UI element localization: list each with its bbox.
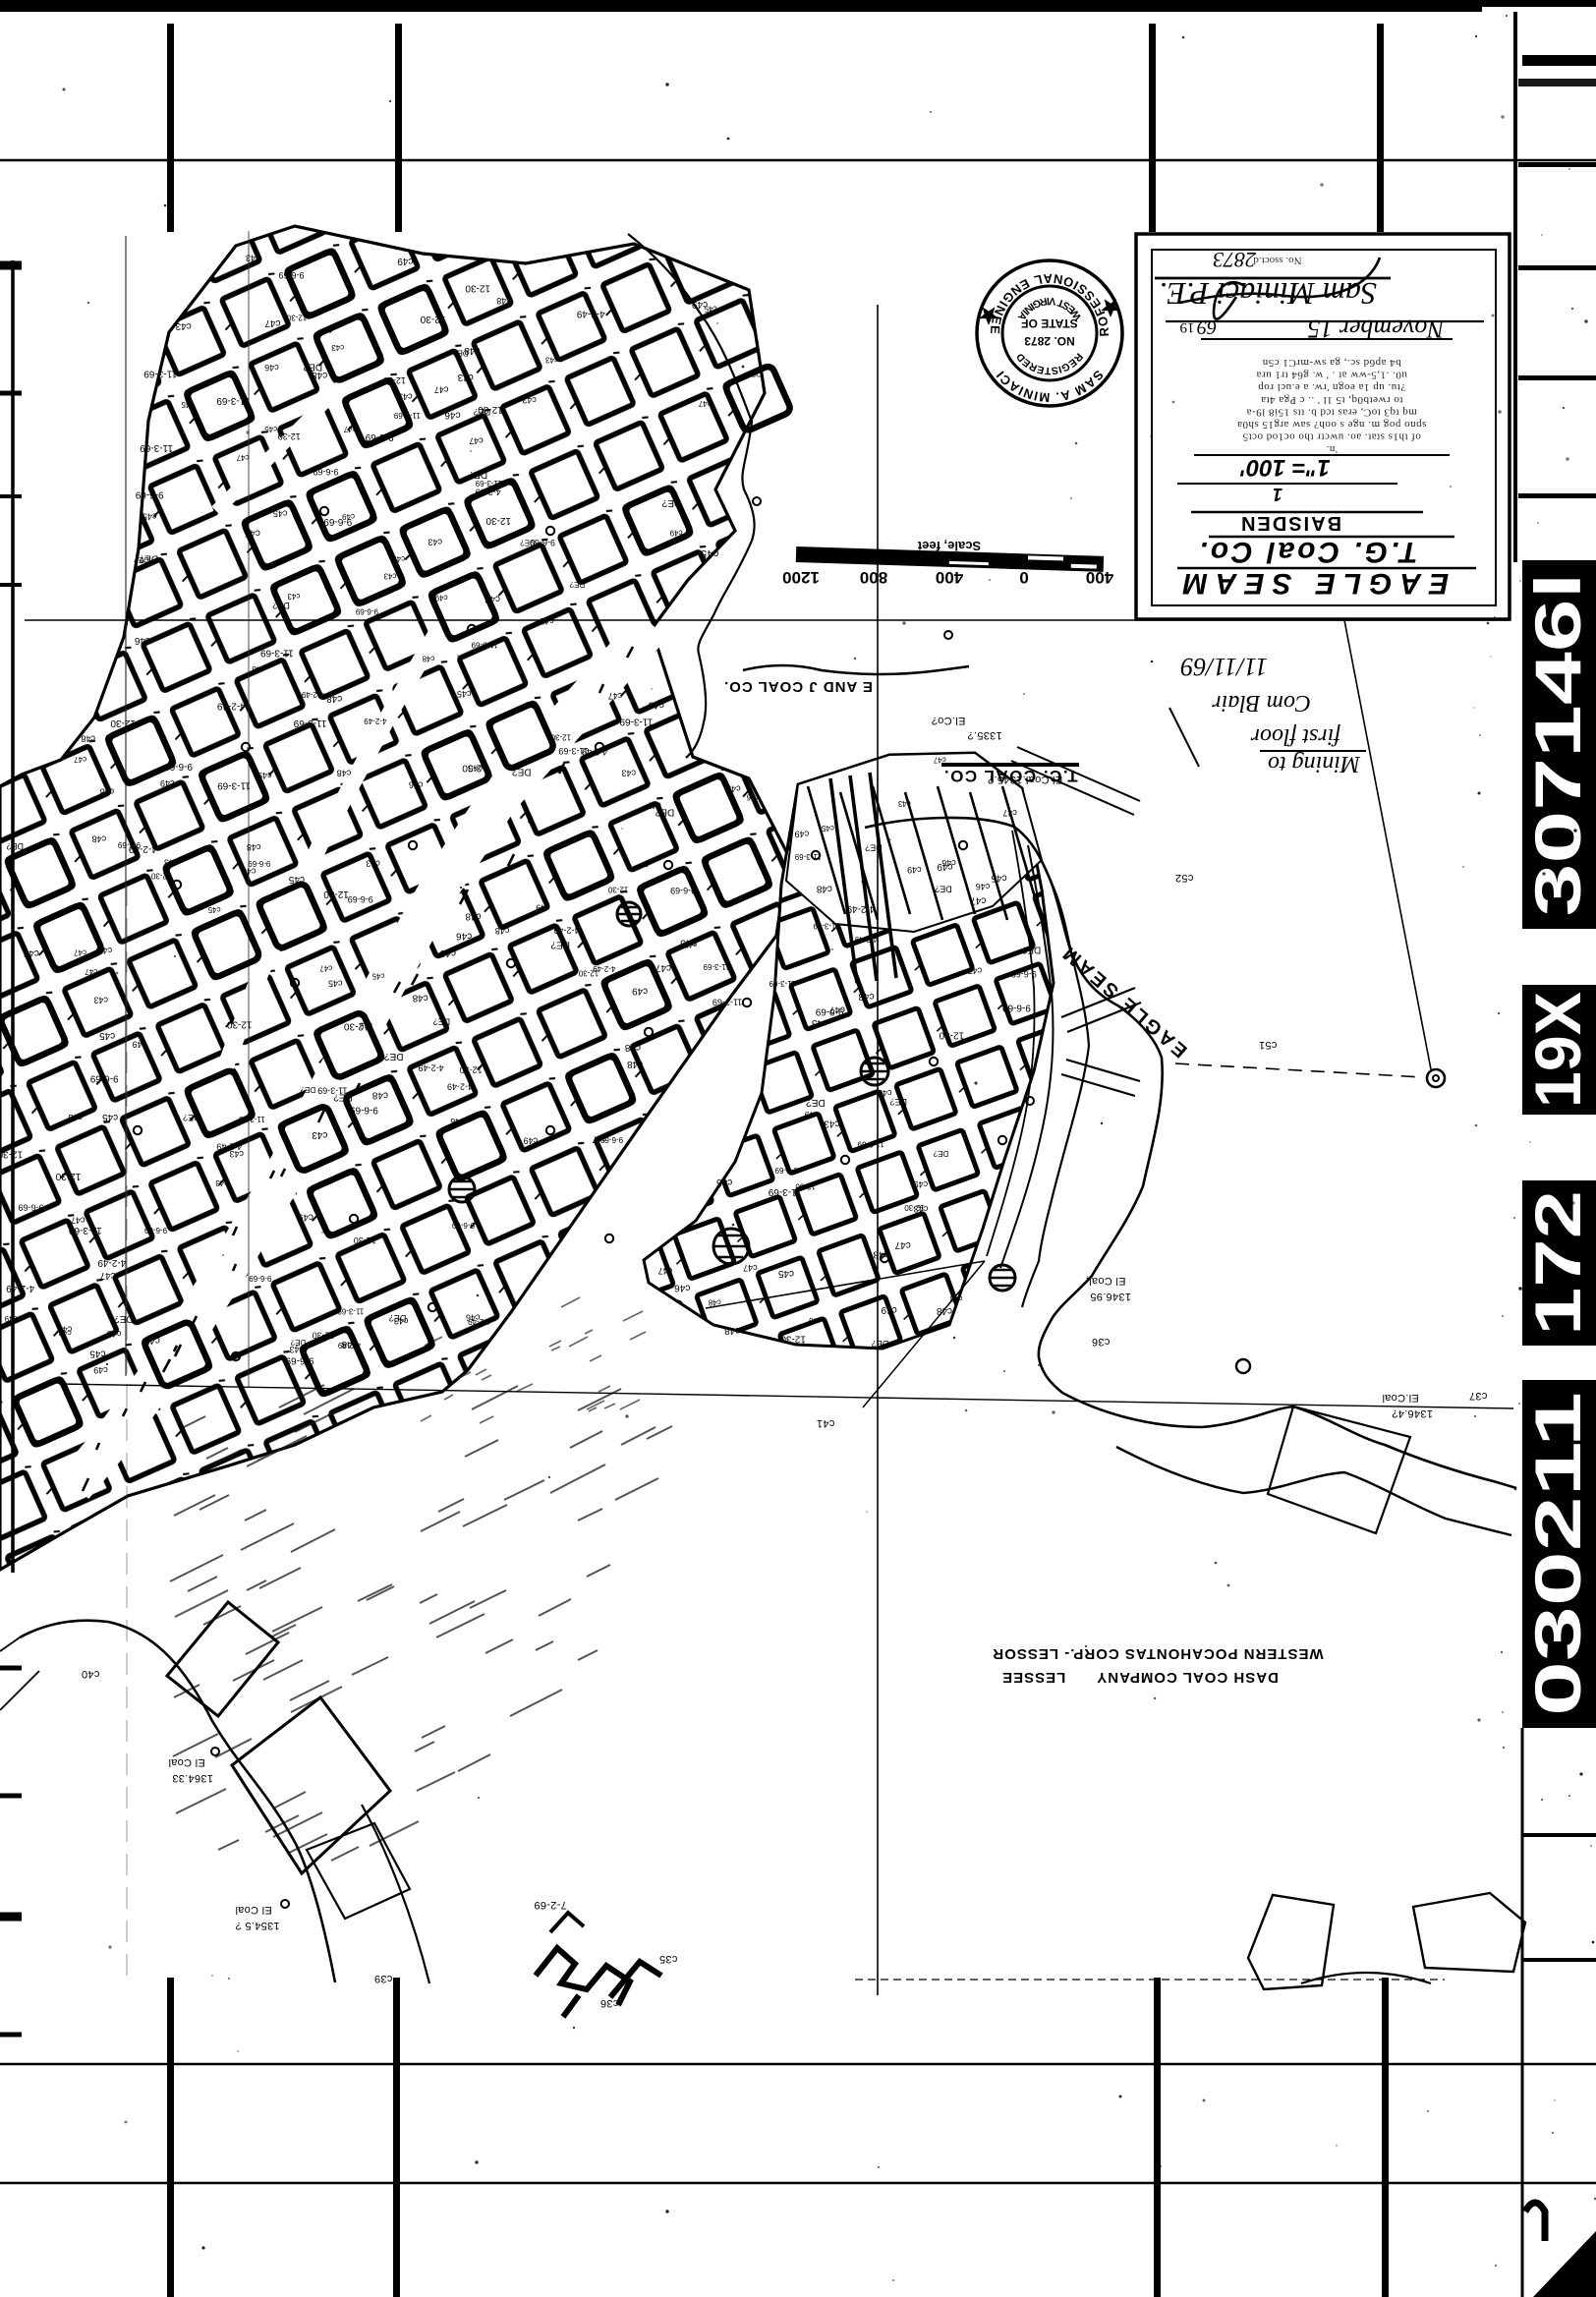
svg-text:DE?: DE? xyxy=(433,1017,451,1027)
svg-text:800: 800 xyxy=(860,568,887,587)
svg-text:c45: c45 xyxy=(102,1112,119,1122)
svg-text:c47: c47 xyxy=(85,967,97,976)
svg-text:c45: c45 xyxy=(468,764,483,774)
svg-text:c46: c46 xyxy=(23,948,39,958)
svg-text:9-6-69: 9-6-69 xyxy=(89,1072,118,1083)
svg-text:DE?: DE? xyxy=(569,580,585,589)
svg-text:c47: c47 xyxy=(434,385,449,395)
svg-text:c48: c48 xyxy=(624,1042,641,1053)
svg-text:El Coal: El Coal xyxy=(235,1904,272,1916)
svg-text:4-2-49: 4-2-49 xyxy=(364,717,387,725)
svg-text:c43: c43 xyxy=(175,320,192,331)
svg-text:4-2-49: 4-2-49 xyxy=(216,1141,242,1151)
svg-text:c46: c46 xyxy=(648,700,664,711)
svg-text:4-2-49: 4-2-49 xyxy=(301,690,324,699)
svg-text:c48: c48 xyxy=(724,1325,741,1336)
svg-text:11-3-69: 11-3-69 xyxy=(619,717,653,727)
svg-text:El Coal: El Coal xyxy=(168,1756,205,1768)
svg-text:c43: c43 xyxy=(545,355,558,364)
svg-text:to rwetb0q, t5 1l ' .. c: to rwetb0q, t5 1l ' .. c Pga 4ta xyxy=(1261,394,1403,406)
svg-text:11-3-69: 11-3-69 xyxy=(471,641,498,650)
svg-text:c48: c48 xyxy=(464,345,481,356)
svg-text:El.Co?: El.Co? xyxy=(932,715,966,726)
svg-text:c49: c49 xyxy=(133,1039,147,1049)
svg-text:c49: c49 xyxy=(524,1136,539,1146)
svg-text:11-3-69: 11-3-69 xyxy=(260,648,294,659)
svg-text:12-30: 12-30 xyxy=(278,431,301,441)
svg-text:c52: c52 xyxy=(1175,872,1194,884)
svg-text:c46: c46 xyxy=(466,1312,481,1322)
svg-text:mq tq3 toC, eras tcd b. tts 1: mq tq3 toC, eras tcd b. tts 15i8 l9-a xyxy=(1246,406,1417,418)
svg-text:c48: c48 xyxy=(495,926,510,936)
svg-text:c47: c47 xyxy=(828,1004,845,1014)
svg-text:El.Coal: El.Coal xyxy=(1382,1392,1419,1404)
svg-text:November 15: November 15 xyxy=(1307,315,1445,343)
svg-text:c47: c47 xyxy=(1002,808,1017,818)
svg-text:4-2-49: 4-2-49 xyxy=(447,1082,473,1092)
svg-text:c48: c48 xyxy=(326,693,343,704)
svg-text:c45: c45 xyxy=(142,512,157,522)
svg-text:c46: c46 xyxy=(674,1282,691,1292)
svg-text:11-3-69: 11-3-69 xyxy=(703,962,730,971)
svg-text:c36: c36 xyxy=(600,1997,619,2009)
svg-text:El.Coal.1345.?: El.Coal.1345.? xyxy=(988,774,1062,785)
svg-text:c47: c47 xyxy=(894,1239,911,1250)
svg-text:c46: c46 xyxy=(444,410,461,421)
svg-text:c47: c47 xyxy=(608,691,623,701)
svg-text:c47: c47 xyxy=(968,965,983,975)
svg-text:400: 400 xyxy=(1086,568,1113,587)
svg-text:c39: c39 xyxy=(374,1973,393,1984)
svg-text:Mining to: Mining to xyxy=(1268,751,1361,776)
svg-text:c45: c45 xyxy=(107,1329,122,1339)
svg-text:c48: c48 xyxy=(708,1297,720,1306)
svg-text:c47: c47 xyxy=(319,964,332,973)
svg-text:c48: c48 xyxy=(252,664,264,673)
svg-text:c43: c43 xyxy=(858,991,875,1002)
svg-text:c45: c45 xyxy=(811,1017,827,1028)
svg-text:c35: c35 xyxy=(659,1953,678,1965)
svg-text:c47: c47 xyxy=(74,755,86,764)
svg-text:c49: c49 xyxy=(397,256,414,266)
svg-text:c48: c48 xyxy=(949,1294,962,1303)
svg-text:9-6-69: 9-6-69 xyxy=(1002,1002,1031,1012)
svg-text:4-2-49: 4-2-49 xyxy=(419,1063,444,1073)
svg-text:c49: c49 xyxy=(297,1212,313,1223)
svg-text:12-30: 12-30 xyxy=(939,1029,964,1040)
svg-text:c48: c48 xyxy=(92,834,107,844)
svg-text:307146l: 307146l xyxy=(1521,573,1594,917)
svg-text:DE?: DE? xyxy=(550,939,570,949)
svg-text:11-3-69: 11-3-69 xyxy=(813,921,840,930)
svg-text:STATE OF: STATE OF xyxy=(1021,316,1078,330)
svg-text:11-3-69: 11-3-69 xyxy=(69,1225,102,1235)
svg-text:No. ssoct.d: No. ssoct.d xyxy=(1253,255,1302,266)
svg-text:9-6-69: 9-6-69 xyxy=(248,859,271,868)
svg-text:c43: c43 xyxy=(366,859,380,869)
svg-text:DE?: DE? xyxy=(114,1313,134,1324)
svg-text:1335.?: 1335.? xyxy=(967,729,1001,741)
svg-text:c49: c49 xyxy=(93,1365,108,1375)
svg-text:c40: c40 xyxy=(82,1668,100,1680)
svg-text:c43: c43 xyxy=(58,1324,73,1334)
svg-text:9-6-69: 9-6-69 xyxy=(1011,969,1037,979)
svg-text:11-3-69: 11-3-69 xyxy=(217,780,251,791)
svg-text:11-3-69: 11-3-69 xyxy=(794,852,822,861)
svg-text:c46: c46 xyxy=(134,635,150,646)
svg-text:c45: c45 xyxy=(328,979,343,989)
svg-text:11/11/69: 11/11/69 xyxy=(1180,653,1268,681)
svg-text:EAGLE SEAM: EAGLE SEAM xyxy=(1175,567,1449,600)
svg-text:c48: c48 xyxy=(465,911,482,922)
svg-text:19X: 19X xyxy=(1521,992,1594,1108)
svg-text:c37: c37 xyxy=(1469,1390,1488,1402)
svg-text:11-3-69: 11-3-69 xyxy=(293,718,326,728)
svg-text:c46: c46 xyxy=(439,948,456,958)
svg-text:4-2-49: 4-2-49 xyxy=(128,843,156,854)
svg-text:4-2-49: 4-2-49 xyxy=(97,1257,126,1268)
svg-text:1200: 1200 xyxy=(782,568,820,587)
svg-text:c45: c45 xyxy=(457,689,472,699)
svg-text:c46: c46 xyxy=(456,930,473,941)
svg-text:c47: c47 xyxy=(236,453,249,462)
svg-text:c48: c48 xyxy=(936,1305,952,1316)
svg-text:9-6-69: 9-6-69 xyxy=(774,1166,798,1175)
svg-text:c46: c46 xyxy=(976,882,991,891)
svg-text:12-30: 12-30 xyxy=(795,1181,816,1190)
svg-text:c47: c47 xyxy=(592,1134,606,1144)
svg-text:DE?: DE? xyxy=(889,1097,907,1107)
svg-text:c48: c48 xyxy=(247,842,261,852)
svg-text:4-2-49: 4-2-49 xyxy=(846,903,875,914)
svg-text:12-30: 12-30 xyxy=(323,889,349,899)
svg-text:1346.4?: 1346.4? xyxy=(1392,1407,1433,1419)
svg-text:DE?: DE? xyxy=(935,885,952,894)
svg-text:DE?: DE? xyxy=(933,1149,948,1158)
svg-text:030211: 030211 xyxy=(1521,1392,1594,1716)
svg-text:Com Blair: Com Blair xyxy=(1212,690,1311,716)
svg-text:12-30: 12-30 xyxy=(478,404,503,415)
svg-text:c45: c45 xyxy=(371,972,384,981)
svg-text:DE?: DE? xyxy=(806,1097,826,1108)
svg-text:c47: c47 xyxy=(99,1270,116,1281)
svg-text:c49: c49 xyxy=(795,830,810,839)
svg-text:9-6-69: 9-6-69 xyxy=(348,894,373,904)
svg-text:11-3-69: 11-3-69 xyxy=(857,1140,884,1149)
svg-text:c43: c43 xyxy=(215,1178,228,1187)
svg-text:0: 0 xyxy=(1019,568,1028,587)
svg-text:12-30: 12-30 xyxy=(354,1235,376,1245)
svg-text:172: 172 xyxy=(1521,1190,1594,1336)
svg-text:b4 ap6d sc., ga sw-mrC1 c5n: b4 ap6d sc., ga sw-mrC1 c5n xyxy=(1262,357,1401,369)
svg-text:c48: c48 xyxy=(337,768,352,777)
svg-text:c48: c48 xyxy=(422,655,434,663)
svg-text:?tu. up 1a eogn 'rw. a e.ucl: ?tu. up 1a eogn 'rw. a e.ucl rop xyxy=(1258,381,1405,393)
svg-text:E AND J COAL CO.: E AND J COAL CO. xyxy=(723,678,873,695)
svg-text:12-30: 12-30 xyxy=(55,1171,81,1181)
svg-text:c49: c49 xyxy=(692,299,709,310)
svg-text:9-6-69: 9-6-69 xyxy=(135,489,163,500)
svg-text:DE?: DE? xyxy=(389,1313,407,1323)
svg-text:9-6-69: 9-6-69 xyxy=(249,1274,272,1283)
svg-text:c45: c45 xyxy=(89,1349,106,1359)
svg-text:4-2-49: 4-2-49 xyxy=(854,935,878,944)
svg-text:c43: c43 xyxy=(312,1129,328,1140)
svg-text:NO. 2873: NO. 2873 xyxy=(1024,334,1075,348)
svg-text:c49: c49 xyxy=(684,941,697,949)
svg-text:7-2-69: 7-2-69 xyxy=(534,1899,567,1911)
svg-text:c45: c45 xyxy=(878,1088,892,1098)
svg-text:c43: c43 xyxy=(383,572,396,581)
svg-text:c46: c46 xyxy=(809,1316,822,1325)
svg-text:DE?: DE? xyxy=(872,1339,889,1349)
svg-text:BAISDEN: BAISDEN xyxy=(1239,512,1341,534)
svg-text:c48: c48 xyxy=(100,787,115,797)
svg-text:c43: c43 xyxy=(287,592,300,601)
svg-text:c46: c46 xyxy=(746,792,759,801)
svg-text:c47: c47 xyxy=(71,1215,85,1225)
svg-text:9-6-69: 9-6-69 xyxy=(451,1221,475,1230)
svg-text:c51: c51 xyxy=(1259,1039,1278,1051)
svg-text:DE?: DE? xyxy=(300,1085,315,1094)
svg-text:69: 69 xyxy=(1197,316,1217,338)
svg-text:c48: c48 xyxy=(627,1059,644,1069)
svg-text:12-30: 12-30 xyxy=(485,515,511,526)
svg-text:12-30: 12-30 xyxy=(460,1064,483,1074)
svg-text:c49: c49 xyxy=(937,861,953,872)
svg-text:4-2-49: 4-2-49 xyxy=(6,1283,34,1293)
svg-text:c43: c43 xyxy=(621,769,636,778)
svg-text:DE?: DE? xyxy=(1021,944,1041,954)
svg-text:4-2-49: 4-2-49 xyxy=(553,925,579,935)
svg-text:c49: c49 xyxy=(4,1314,17,1323)
svg-text:WESTERN POCAHONTAS CORP.- LESS: WESTERN POCAHONTAS CORP.- LESSOR xyxy=(992,1645,1323,1662)
svg-text:c48: c48 xyxy=(412,993,428,1004)
svg-text:c43: c43 xyxy=(246,253,260,262)
svg-text:1346.95: 1346.95 xyxy=(1090,1291,1131,1302)
svg-text:T.G. Coal Co.: T.G. Coal Co. xyxy=(1196,536,1417,568)
svg-text:11-3-69: 11-3-69 xyxy=(769,979,796,988)
svg-text:c45: c45 xyxy=(264,425,277,433)
svg-text:c46: c46 xyxy=(264,363,279,373)
svg-text:c43: c43 xyxy=(522,395,537,405)
svg-text:11-3-69: 11-3-69 xyxy=(337,1306,365,1315)
svg-text:c45: c45 xyxy=(777,1268,794,1279)
svg-text:c45: c45 xyxy=(99,1030,116,1041)
svg-text:12-30: 12-30 xyxy=(0,1148,23,1159)
svg-text:c49: c49 xyxy=(914,1179,929,1189)
svg-text:'n.: 'n. xyxy=(1326,443,1338,455)
svg-text:DE?: DE? xyxy=(865,843,883,853)
svg-text:12-30: 12-30 xyxy=(607,886,628,894)
svg-text:DE?: DE? xyxy=(303,361,322,372)
svg-text:c45: c45 xyxy=(821,824,833,833)
svg-text:first floor: first floor xyxy=(1250,723,1340,749)
svg-text:12-30: 12-30 xyxy=(465,282,490,293)
svg-text:c45: c45 xyxy=(716,1177,733,1187)
svg-text:c47: c47 xyxy=(647,801,661,811)
svg-text:11-3-69: 11-3-69 xyxy=(712,998,742,1007)
svg-text:c43: c43 xyxy=(897,799,910,808)
svg-text:c49: c49 xyxy=(536,903,550,913)
svg-text:DE?: DE? xyxy=(139,553,158,564)
svg-text:9-6-69: 9-6-69 xyxy=(355,607,378,616)
svg-text:12-30: 12-30 xyxy=(780,1334,806,1345)
svg-text:400: 400 xyxy=(936,568,963,587)
svg-text:4-2-49: 4-2-49 xyxy=(576,308,604,318)
svg-text:c46: c46 xyxy=(409,779,424,789)
svg-text:c48: c48 xyxy=(540,616,554,626)
svg-text:c48: c48 xyxy=(496,296,511,306)
svg-text:c49: c49 xyxy=(160,778,175,788)
svg-text:c36: c36 xyxy=(1092,1336,1111,1348)
svg-text:c49: c49 xyxy=(632,986,649,997)
svg-text:4-2-49: 4-2-49 xyxy=(216,700,245,711)
svg-text:12-30: 12-30 xyxy=(904,1203,925,1212)
svg-text:c47: c47 xyxy=(264,317,281,328)
svg-text:c48: c48 xyxy=(69,1113,84,1122)
svg-text:c47: c47 xyxy=(970,894,987,905)
svg-text:Scale, feet: Scale, feet xyxy=(917,539,981,553)
svg-text:c48: c48 xyxy=(816,884,832,894)
svg-text:12-30: 12-30 xyxy=(227,1018,253,1029)
svg-text:c48: c48 xyxy=(81,733,95,743)
svg-text:9-6-69: 9-6-69 xyxy=(143,1226,167,1235)
svg-text:DASH COAL COMPANY LESSEE: DASH COAL COMPANY LESSEE xyxy=(1001,1669,1279,1686)
svg-text:9-6-69: 9-6-69 xyxy=(313,467,339,477)
svg-text:DE?: DE? xyxy=(384,1051,404,1062)
svg-text:c43: c43 xyxy=(824,1118,840,1128)
svg-text:11-3-69: 11-3-69 xyxy=(143,369,177,379)
svg-text:9-6-69: 9-6-69 xyxy=(19,1203,44,1213)
svg-text:1354.5 ?: 1354.5 ? xyxy=(235,1920,279,1931)
svg-text:of th1s stat. ao. uwctr tho oc: of th1s stat. ao. uwctr tho oc1od oct5 xyxy=(1242,431,1421,443)
svg-text:c45: c45 xyxy=(242,867,256,877)
svg-text:1"= 100': 1"= 100' xyxy=(1239,454,1330,481)
svg-text:c48: c48 xyxy=(371,1090,388,1101)
svg-text:c49: c49 xyxy=(805,1110,820,1120)
svg-text:c47: c47 xyxy=(469,436,484,446)
svg-text:1364.33: 1364.33 xyxy=(172,1772,213,1784)
svg-text:9-6-69: 9-6-69 xyxy=(323,516,352,527)
svg-text:1: 1 xyxy=(1273,485,1282,504)
svg-text:c49: c49 xyxy=(881,1304,897,1315)
svg-text:c45: c45 xyxy=(701,547,719,559)
svg-text:c45: c45 xyxy=(991,872,1007,883)
svg-text:11-3-69: 11-3-69 xyxy=(140,442,173,453)
svg-text:c41: c41 xyxy=(817,1417,835,1429)
svg-text:DE?: DE? xyxy=(468,469,487,480)
svg-text:c43: c43 xyxy=(331,343,344,352)
svg-text:c43: c43 xyxy=(94,995,109,1005)
svg-text:c47: c47 xyxy=(743,1263,758,1273)
svg-text:11-3-69: 11-3-69 xyxy=(317,1085,347,1095)
svg-text:El Coal,: El Coal, xyxy=(1086,1275,1126,1287)
svg-text:c48: c48 xyxy=(873,1249,889,1260)
svg-text:DE?: DE? xyxy=(7,841,25,851)
svg-text:c49: c49 xyxy=(907,865,922,875)
svg-text:9-6-69: 9-6-69 xyxy=(530,538,555,547)
svg-text:2873: 2873 xyxy=(1213,248,1256,272)
svg-text:spno pog m. nge s ooh? saw arg: spno pog m. nge s ooh? saw arg15 sh0a xyxy=(1237,419,1427,431)
svg-text:c43: c43 xyxy=(428,538,443,547)
svg-text:c43: c43 xyxy=(457,372,474,382)
svg-text:4-2-49: 4-2-49 xyxy=(593,964,616,973)
svg-text:c47: c47 xyxy=(658,1266,673,1276)
svg-text:11-3-69: 11-3-69 xyxy=(558,746,588,756)
svg-text:c47: c47 xyxy=(933,756,945,765)
svg-text:c47: c47 xyxy=(698,399,711,408)
svg-text:u0. .1,5-ww at . ' w. g64 tr: u0. .1,5-ww at . ' w. g64 tr1 ura xyxy=(1256,370,1407,381)
